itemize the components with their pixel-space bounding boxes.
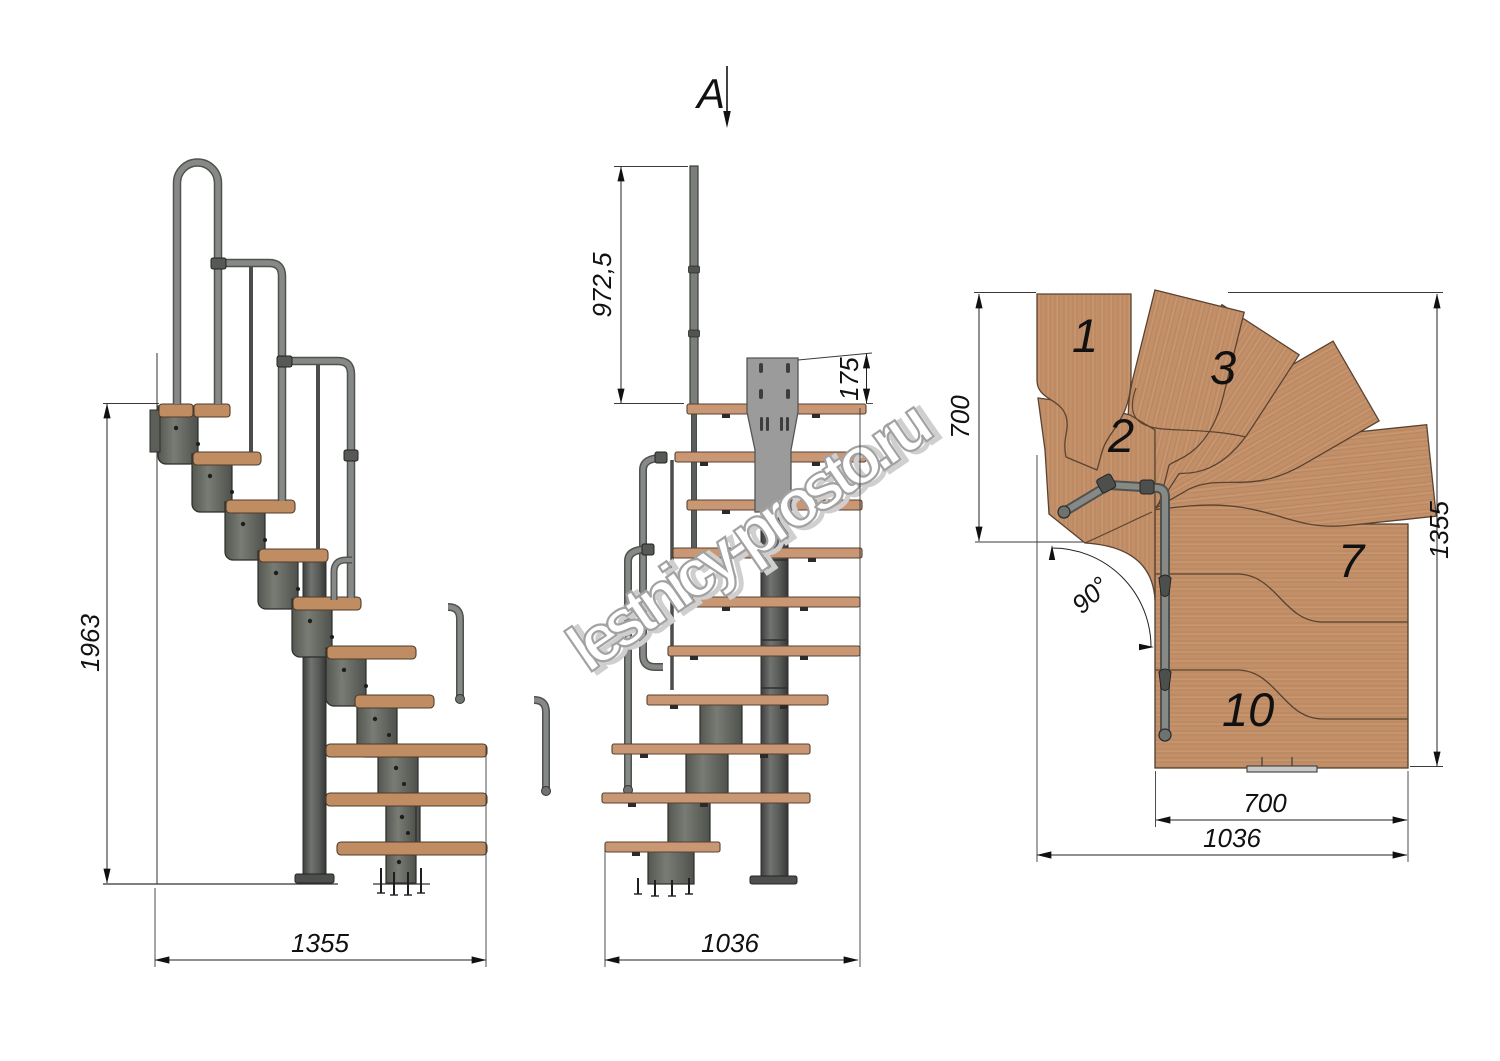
- svg-text:1963: 1963: [75, 614, 105, 672]
- svg-text:1: 1: [1072, 309, 1098, 362]
- svg-text:1036: 1036: [1203, 823, 1261, 853]
- svg-text:2: 2: [1107, 409, 1134, 462]
- svg-text:972,5: 972,5: [587, 252, 617, 318]
- svg-text:3: 3: [1210, 341, 1236, 394]
- svg-text:7: 7: [1338, 534, 1366, 587]
- svg-text:700: 700: [1243, 788, 1287, 818]
- svg-text:700: 700: [945, 395, 975, 439]
- svg-text:1036: 1036: [701, 928, 759, 958]
- svg-text:A: A: [694, 70, 725, 117]
- svg-text:1355: 1355: [291, 928, 349, 958]
- svg-text:1355: 1355: [1424, 501, 1454, 559]
- svg-text:175: 175: [834, 357, 864, 401]
- svg-text:10: 10: [1222, 683, 1274, 736]
